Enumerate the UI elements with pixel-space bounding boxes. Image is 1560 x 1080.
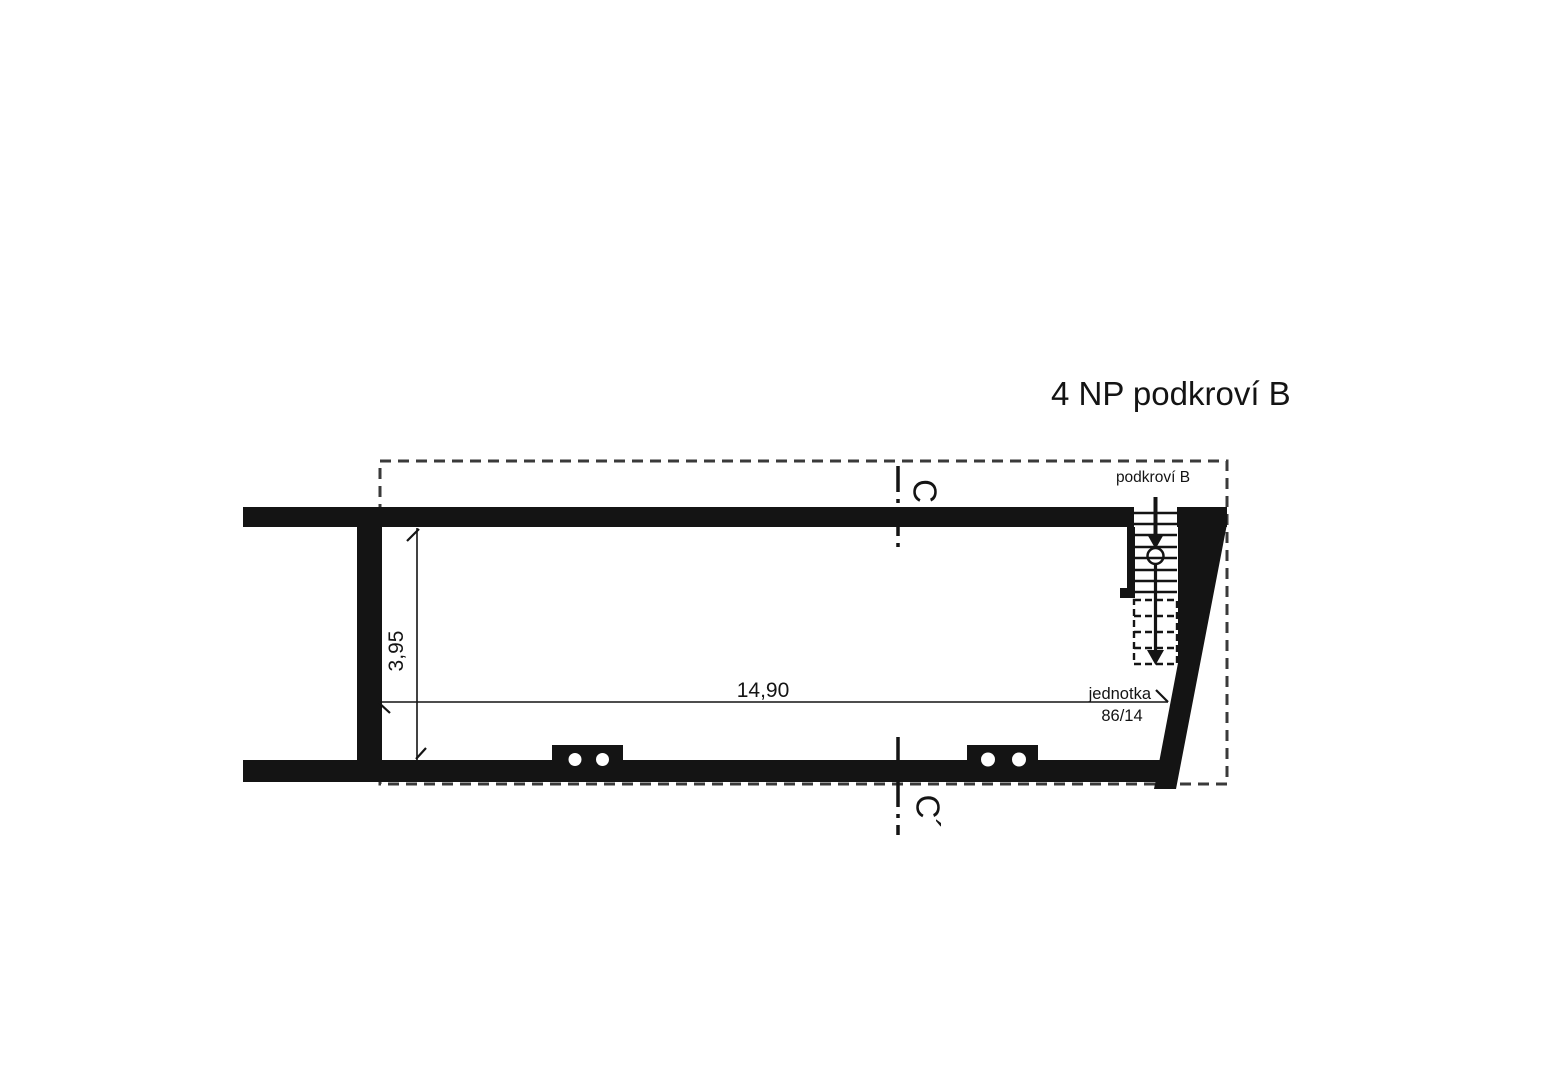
unit-number: 86/14: [1101, 707, 1142, 725]
flue-opening: [1012, 753, 1026, 767]
flue-opening: [596, 753, 609, 766]
flue-opening: [981, 753, 995, 767]
dim-width-label: 14,90: [737, 679, 790, 702]
area-label: podkroví B: [1116, 469, 1190, 486]
stair-arrowhead-end: [1147, 650, 1164, 665]
section-label-top: C: [907, 479, 944, 503]
stair-side-wall-foot: [1120, 588, 1135, 598]
plan-title: 4 NP podkroví B: [1051, 375, 1291, 412]
floor-plan-drawing: 3,95 14,90 C C´ 4 NP podkroví B podkroví…: [0, 0, 1560, 1080]
dim-tick: [1156, 690, 1168, 702]
chimney-block-right: [967, 745, 1038, 767]
section-label-bottom: C´: [910, 795, 947, 830]
wall-interior-left: [357, 507, 382, 782]
dimension-height: 3,95: [385, 528, 426, 760]
dim-height-label: 3,95: [385, 631, 408, 672]
flue-opening: [569, 753, 582, 766]
stair-side-wall: [1127, 527, 1135, 590]
unit-label: jednotka: [1088, 685, 1152, 703]
dimension-width: 14,90: [378, 679, 1168, 713]
chimney-block-left: [552, 745, 623, 767]
floor-plan-canvas: 3,95 14,90 C C´ 4 NP podkroví B podkroví…: [0, 0, 1560, 1080]
wall-top: [243, 507, 1227, 527]
